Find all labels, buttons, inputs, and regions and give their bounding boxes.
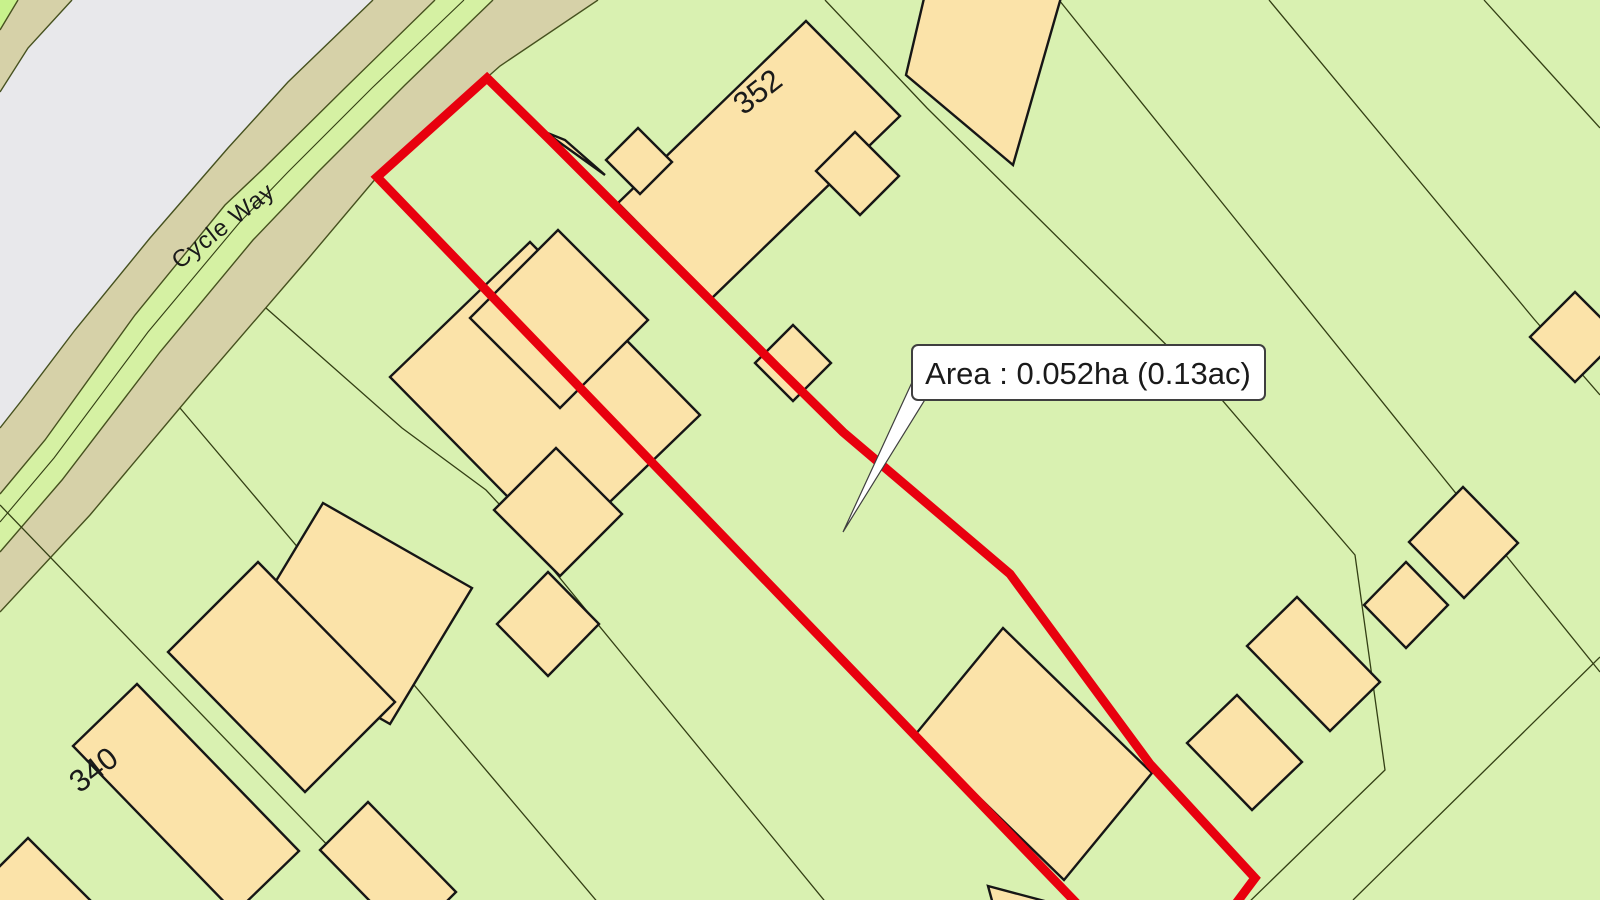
- map-viewport[interactable]: Cycle Way 352 340 Area : 0.052ha (0.13ac…: [0, 0, 1600, 900]
- site-plan-map[interactable]: Cycle Way 352 340 Area : 0.052ha (0.13ac…: [0, 0, 1600, 900]
- area-label: Area : 0.052ha (0.13ac): [925, 356, 1251, 391]
